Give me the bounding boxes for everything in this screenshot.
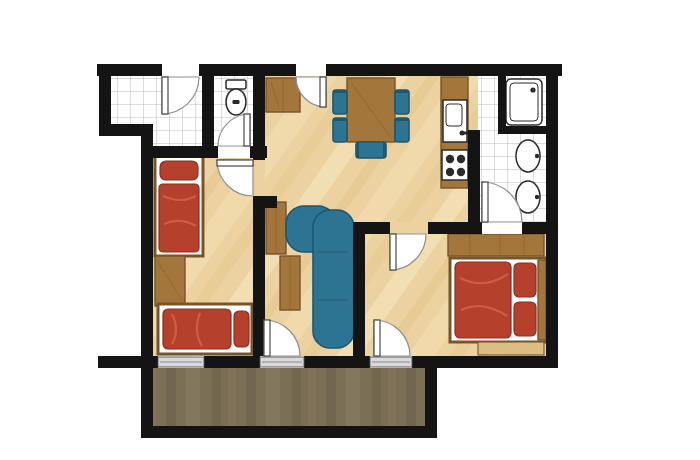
wall-stub [265, 196, 277, 208]
burner-icon [457, 168, 465, 176]
bed-pillow [160, 161, 198, 180]
wall-bedroom2-top [353, 222, 390, 234]
balcony-door-threshold-1 [158, 357, 204, 367]
shower-drain-icon [530, 87, 535, 92]
floor-plan-canvas [0, 0, 700, 460]
dining-chair-1 [333, 90, 347, 114]
stove [442, 150, 468, 180]
wall-bottom [412, 356, 425, 368]
doorway-wc [218, 146, 250, 158]
doorway-entry-b [296, 64, 326, 76]
door-leaf-bathroom [482, 182, 488, 222]
dining-chair-5 [356, 142, 386, 158]
wall-bottom [304, 356, 370, 368]
door-leaf-entry-b [320, 77, 326, 107]
floor-plan [0, 0, 700, 460]
bedroom-bench [478, 342, 544, 355]
door-leaf-bedroom-left [217, 160, 253, 166]
wall-left [141, 124, 153, 368]
wall-right [546, 64, 558, 368]
wall-bottom-right [425, 356, 558, 368]
doorway-entry-a [162, 64, 199, 76]
living-cabinet-1 [266, 202, 286, 254]
bed-pillow [234, 311, 249, 347]
door-leaf-bedroom-right [390, 234, 396, 270]
sofa-body [313, 210, 354, 348]
wall-bedrooms-right [253, 196, 265, 356]
kitchen [441, 77, 470, 188]
dining-chair-2 [333, 118, 347, 142]
door-leaf-entry-a [162, 77, 168, 114]
wall-shower-bottom [498, 126, 546, 134]
balcony-deck [153, 368, 425, 426]
dining-chair-4 [395, 118, 409, 142]
door-leaf-balcony-living [264, 320, 270, 356]
wall-bottom [204, 356, 260, 368]
bed-blanket [159, 184, 199, 252]
double-bed [450, 258, 546, 342]
burner-icon [446, 168, 454, 176]
doorway-bedroom-right [390, 222, 428, 234]
wall-bedroom2-top [522, 222, 546, 234]
wall-living-right [353, 222, 365, 356]
living-cabinet-2 [280, 256, 300, 310]
balcony-door-threshold-2 [260, 357, 304, 367]
doorway-bathroom [482, 222, 522, 234]
bed-blanket [455, 262, 511, 338]
wall-bedroom2-top [428, 222, 482, 234]
balcony-wall-bottom [141, 426, 437, 438]
washbasin-1 [516, 140, 540, 172]
hall-wardrobe [266, 78, 300, 112]
doorway-bedroom-left [253, 160, 265, 196]
balcony-door-threshold-3 [370, 357, 412, 367]
single-bed-2 [158, 304, 252, 354]
kitchen-sink [443, 100, 470, 142]
bed-pillow [514, 302, 536, 336]
bed-pillow [514, 263, 536, 297]
wall-kitchen-bath [468, 130, 480, 222]
single-bed-1 [155, 156, 203, 256]
wall-wc-left [202, 76, 214, 146]
wall-shower-left [498, 76, 506, 134]
toilet [226, 80, 246, 115]
balcony-wall-right [425, 356, 437, 438]
burner-icon [457, 155, 465, 163]
bed-headboard [538, 260, 546, 340]
dining-chair-3 [395, 90, 409, 114]
wall-hall-bottom [141, 146, 218, 158]
shower [506, 79, 542, 125]
bedroom-wardrobe-left [155, 256, 185, 306]
door-leaf-balcony-bedroom [374, 320, 380, 356]
wall-bedrooms-right [253, 76, 265, 160]
burner-icon [446, 155, 454, 163]
bedroom-wardrobe-right [448, 234, 544, 256]
door-leaf-wc [244, 114, 250, 146]
